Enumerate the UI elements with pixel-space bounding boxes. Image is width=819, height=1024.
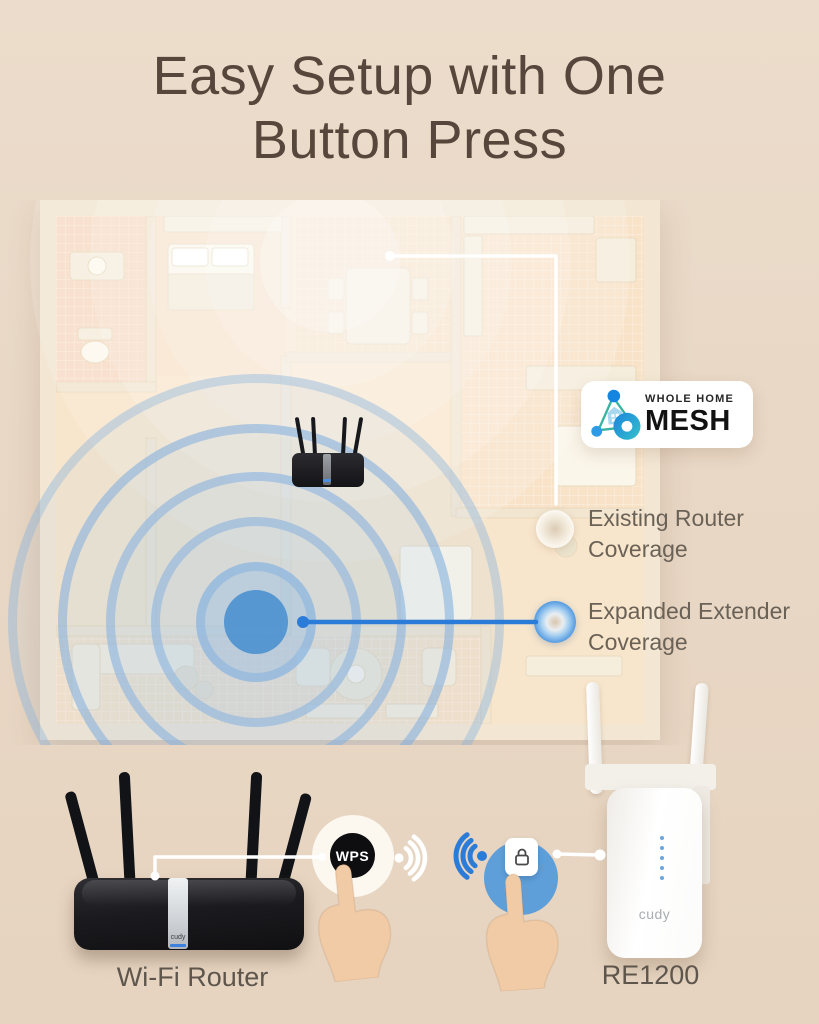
- re1200-illustration: cudy: [580, 678, 725, 963]
- router-led: [323, 479, 331, 482]
- wifi-router-illustration: cudy: [60, 770, 325, 965]
- expanded-coverage-dot: [534, 601, 576, 643]
- legend-expanded-line2: Coverage: [588, 627, 790, 658]
- wifi-signal-left-icon: [446, 830, 488, 882]
- extender-body: [607, 788, 702, 958]
- mesh-badge: WHOLE HOME MESH: [581, 381, 753, 448]
- page-title-line2: Button Press: [0, 108, 819, 172]
- antenna-icon: [311, 417, 317, 455]
- router-brand-logo: cudy: [171, 934, 186, 941]
- mesh-logo-icon: [587, 388, 641, 442]
- floorplan-scene: [0, 200, 819, 745]
- router-led: [170, 944, 186, 947]
- legend-expanded-line1: Expanded Extender: [588, 596, 790, 627]
- page-title: Easy Setup with One Button Press: [0, 44, 819, 172]
- legend-expanded-extender: Expanded Extender Coverage: [588, 596, 790, 658]
- router-label: Wi-Fi Router: [60, 962, 325, 993]
- page-title-line1: Easy Setup with One: [0, 44, 819, 108]
- legend-existing-router: Existing Router Coverage: [588, 503, 744, 565]
- extender-label: RE1200: [578, 960, 723, 991]
- badge-mesh-label: MESH: [645, 407, 734, 436]
- existing-coverage-dot: [536, 510, 574, 548]
- antenna-icon: [353, 417, 364, 455]
- legend-existing-line2: Coverage: [588, 534, 744, 565]
- router-floorplan-illustration: [290, 415, 370, 490]
- antenna-icon: [295, 417, 306, 455]
- product-infographic: Easy Setup with One Button Press: [0, 0, 819, 1024]
- antenna-icon: [341, 417, 347, 455]
- router-stripe: cudy: [168, 878, 188, 949]
- badge-whole-home-label: WHOLE HOME: [645, 394, 734, 405]
- wps-button-label: WPS: [336, 848, 369, 864]
- lock-icon: [513, 847, 531, 867]
- pairing-button: [505, 838, 538, 876]
- wps-button: WPS: [330, 833, 375, 878]
- extender-coverage-center: [224, 590, 288, 654]
- extender-brand-logo: cudy: [607, 906, 702, 922]
- wifi-signal-right-icon: [393, 832, 435, 884]
- legend-existing-line1: Existing Router: [588, 503, 744, 534]
- router-top-sheen: [82, 880, 296, 906]
- extender-led-indicators: [660, 836, 664, 880]
